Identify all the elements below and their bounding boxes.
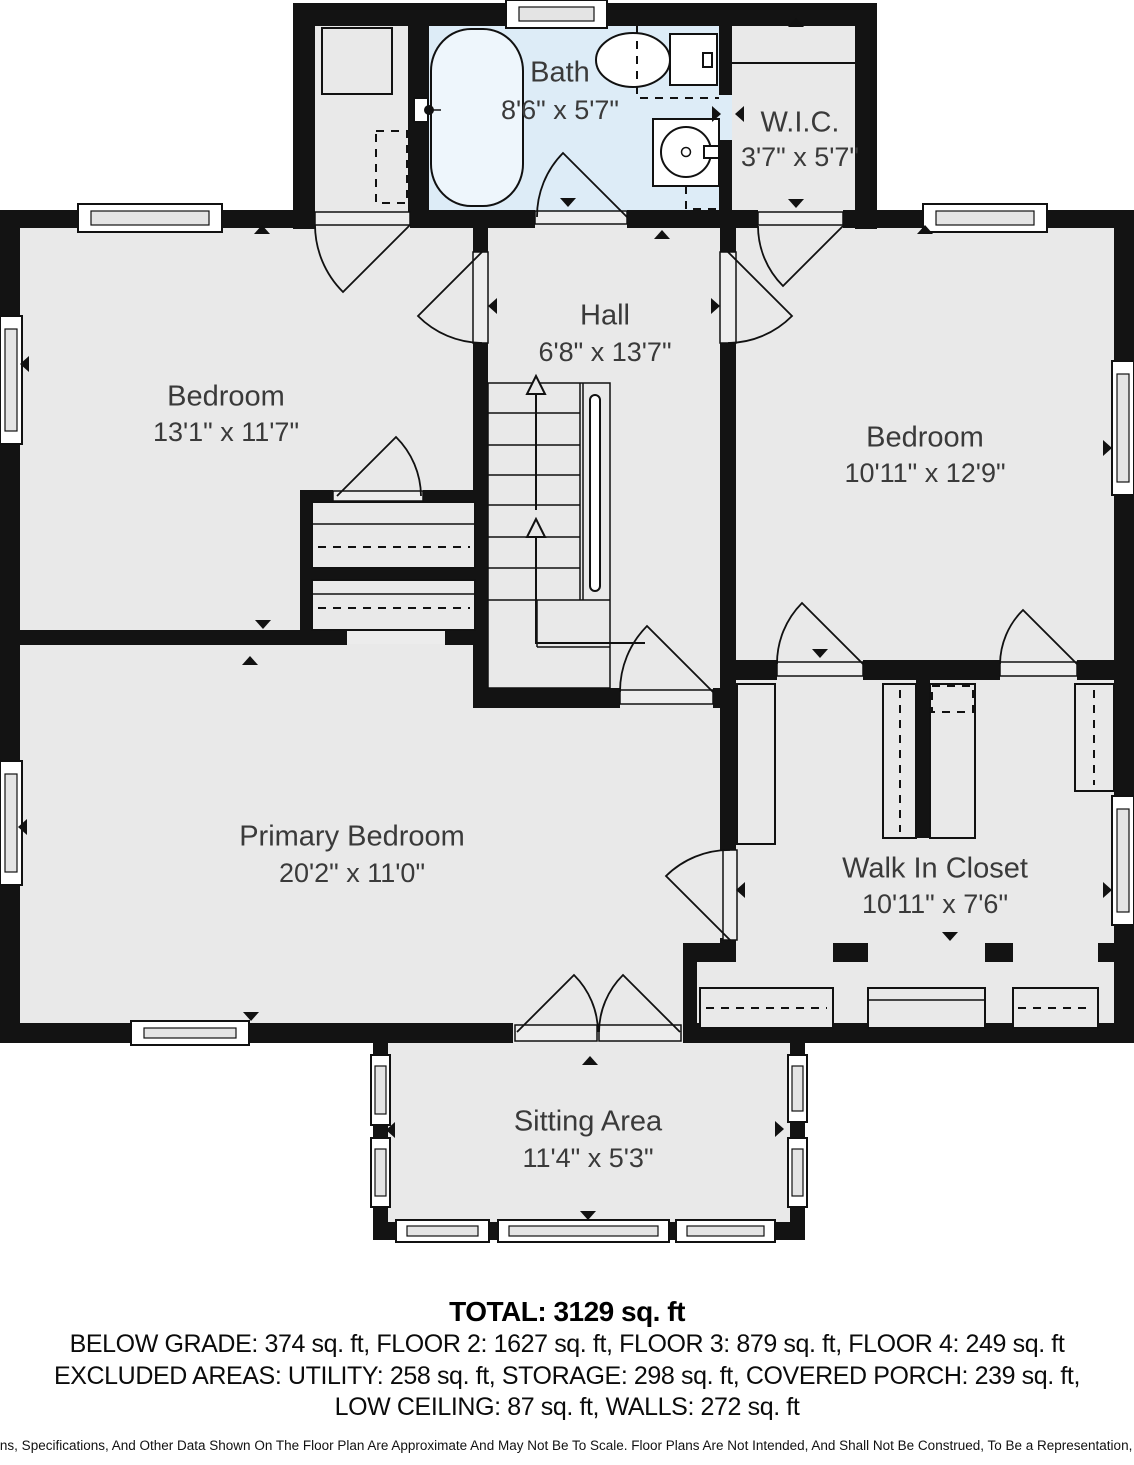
- disclaimer: Dimensions, Specifications, And Other Da…: [0, 1438, 1134, 1453]
- window: [0, 761, 22, 885]
- room-dims-walkin: 10'11" x 7'6": [862, 889, 1008, 919]
- room-dims-primary: 20'2" x 11'0": [279, 858, 425, 888]
- sink-vanity-icon: [653, 119, 719, 186]
- cased-opening: [347, 631, 445, 644]
- area-summary: TOTAL: 3129 sq. ft BELOW GRADE: 374 sq. …: [0, 1295, 1134, 1453]
- floor-areas: [0, 3, 1134, 1240]
- window: [676, 1220, 775, 1242]
- room-label-sitting: Sitting Area: [514, 1106, 663, 1138]
- disclaimer-text: Dimensions, Specifications, And Other Da…: [0, 1438, 1134, 1453]
- window: [371, 1138, 390, 1207]
- window: [131, 1021, 249, 1045]
- room-dims-sitting: 11'4" x 5'3": [522, 1143, 653, 1173]
- room-label-hall: Hall: [580, 300, 630, 332]
- storage-shelf: [322, 28, 392, 94]
- window: [498, 1220, 669, 1242]
- room-label-primary: Primary Bedroom: [239, 821, 465, 853]
- room-label-walkin: Walk In Closet: [842, 853, 1028, 885]
- window: [1112, 796, 1134, 925]
- floor-plan-page: Bath 8'6" x 5'7" W.I.C. 3'7" x 5'7" Hall…: [0, 0, 1134, 1465]
- room-label-bedroom-right: Bedroom: [866, 422, 984, 454]
- window: [506, 0, 607, 28]
- room-label-bath: Bath: [530, 57, 590, 89]
- total-area: TOTAL: 3129 sq. ft: [0, 1295, 1134, 1329]
- room-label-bedroom-left: Bedroom: [167, 381, 285, 413]
- window: [371, 1055, 390, 1125]
- window: [788, 1055, 807, 1122]
- window: [788, 1138, 807, 1207]
- room-dims-wic: 3'7" x 5'7": [741, 142, 859, 172]
- room-dims-hall: 6'8" x 13'7": [538, 337, 671, 367]
- excluded-areas-line2: LOW CEILING: 87 sq. ft, WALLS: 272 sq. f…: [0, 1392, 1134, 1424]
- room-dims-bedroom-left: 13'1" x 11'7": [153, 417, 299, 447]
- stair-railing: [590, 395, 600, 591]
- floor-areas-line: BELOW GRADE: 374 sq. ft, FLOOR 2: 1627 s…: [0, 1329, 1134, 1361]
- window: [0, 316, 22, 444]
- toilet-icon: [596, 33, 717, 87]
- excluded-areas-line: EXCLUDED AREAS: UTILITY: 258 sq. ft, STO…: [0, 1361, 1134, 1393]
- closet-shelves-bedroom: [312, 502, 475, 630]
- window: [1112, 361, 1134, 495]
- room-label-wic: W.I.C.: [761, 107, 840, 139]
- room-dims-bath: 8'6" x 5'7": [501, 95, 619, 125]
- window: [78, 204, 222, 232]
- window: [923, 204, 1047, 232]
- window: [396, 1220, 489, 1242]
- floor-plan: Bath 8'6" x 5'7" W.I.C. 3'7" x 5'7" Hall…: [0, 0, 1134, 1270]
- room-dims-bedroom-right: 10'11" x 12'9": [844, 458, 1005, 488]
